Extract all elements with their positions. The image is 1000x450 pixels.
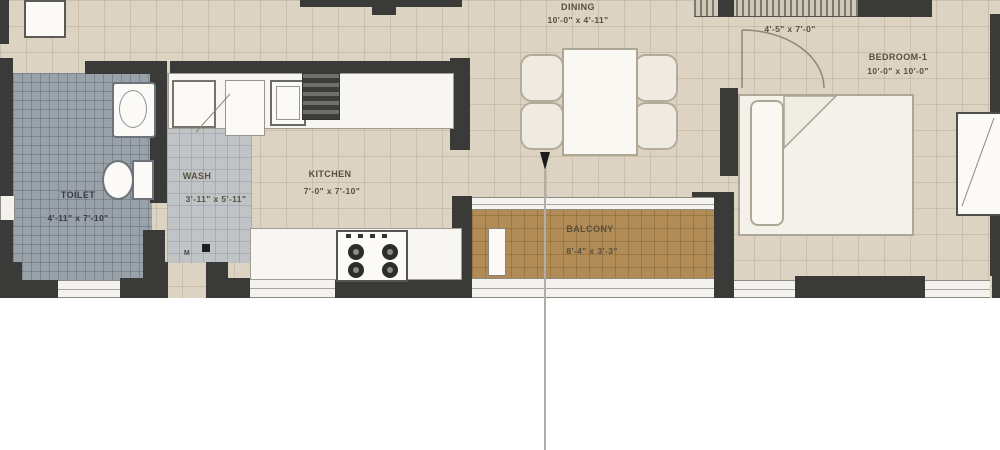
dining-table xyxy=(562,48,638,156)
wall-segment xyxy=(372,0,396,15)
passage-dims: 4'-5" x 7'-0" xyxy=(764,24,815,35)
balcony-label: BALCONY xyxy=(566,224,613,235)
wc-tank xyxy=(132,160,154,200)
balcony-floor xyxy=(472,202,714,280)
wall-segment xyxy=(0,280,58,298)
kitchen-dims: 7'-0" x 7'-10" xyxy=(304,186,360,197)
wash-label: WASH xyxy=(183,171,212,182)
dining-chair xyxy=(634,54,678,102)
blank-area-below-plan xyxy=(0,298,1000,450)
pillow xyxy=(750,100,784,226)
stove-knob xyxy=(382,234,387,238)
wall-segment xyxy=(990,210,1000,276)
balcony-door-leaf xyxy=(488,228,506,276)
toilet-dims: 4'-11" x 7'-10" xyxy=(47,213,108,224)
dining-chair xyxy=(634,102,678,150)
bedroom1-label: BEDROOM-1 xyxy=(869,52,928,63)
counter-unit xyxy=(225,80,265,136)
stove-knob xyxy=(346,234,351,238)
wall-segment xyxy=(990,14,1000,114)
stove-burner xyxy=(382,262,398,278)
dining-chair xyxy=(520,54,564,102)
wash-dims: 3'-11" x 5'-11" xyxy=(186,194,247,205)
bedroom-window xyxy=(734,280,795,298)
wall-segment xyxy=(718,0,734,17)
wall-segment xyxy=(795,276,925,298)
wall-segment xyxy=(206,278,250,298)
wall-segment xyxy=(720,88,738,176)
toilet-label: TOILET xyxy=(61,190,95,201)
stove-knob xyxy=(370,234,375,238)
wall-segment xyxy=(120,278,168,298)
kitchen-sink xyxy=(270,80,306,126)
wall-segment xyxy=(992,276,1000,298)
dining-label: DINING xyxy=(561,2,595,13)
wall-segment xyxy=(0,0,9,44)
stove-burner xyxy=(348,244,364,260)
bedroom1-dims: 10'-0" x 10'-0" xyxy=(867,66,929,77)
washing-machine xyxy=(172,80,216,128)
bedroom-side-window xyxy=(956,112,1000,216)
wc-bowl xyxy=(102,160,134,200)
balcony-railing xyxy=(472,278,714,298)
balcony-dims: 8'-4" x 3'-3" xyxy=(566,246,617,257)
wash-basin xyxy=(112,82,156,138)
bedroom-window xyxy=(925,280,990,298)
wall-segment xyxy=(714,192,734,298)
kitchen-hob xyxy=(302,73,340,120)
wall-segment xyxy=(858,0,932,17)
floor-plan: DINING 10'-0" x 4'-11" 4'-5" x 7'-0" BED… xyxy=(0,0,1000,450)
duct-shaft xyxy=(24,0,66,38)
toilet-vent-window xyxy=(0,196,15,220)
kitchen-window xyxy=(250,278,335,298)
dining-dims: 10'-0" x 4'-11" xyxy=(547,15,608,26)
stove-knob xyxy=(358,234,363,238)
dining-chair xyxy=(520,102,564,150)
basin-bowl xyxy=(119,90,147,128)
door-tag: M xyxy=(184,250,190,259)
stove xyxy=(336,230,408,282)
kitchen-label: KITCHEN xyxy=(309,169,352,180)
stove-burner xyxy=(348,262,364,278)
balcony-sliding-door xyxy=(472,197,714,210)
toilet-window xyxy=(58,280,120,298)
stove-burner xyxy=(382,244,398,260)
sink-basin xyxy=(276,86,300,120)
wall-segment xyxy=(85,61,152,74)
